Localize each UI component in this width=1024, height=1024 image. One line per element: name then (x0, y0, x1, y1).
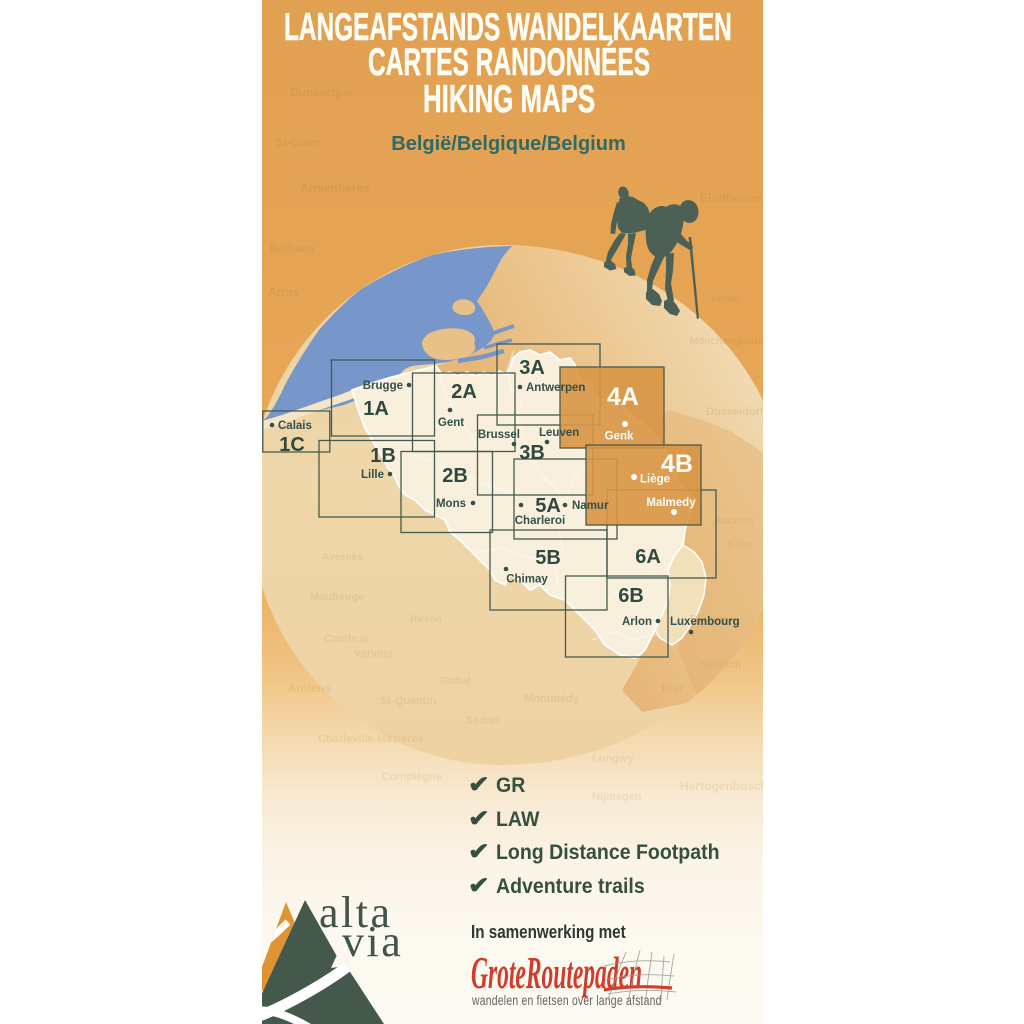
svg-text:Malmedy: Malmedy (646, 497, 696, 509)
svg-text:5B: 5B (535, 547, 561, 569)
svg-text:via: via (342, 917, 403, 966)
svg-text:Brugge: Brugge (363, 380, 403, 392)
svg-text:Köln: Köln (728, 539, 753, 551)
svg-text:Avesnes: Avesnes (322, 552, 363, 563)
svg-text:Düsseldorf: Düsseldorf (706, 406, 763, 418)
svg-text:Arlon: Arlon (622, 616, 652, 628)
svg-text:Leuven: Leuven (539, 427, 579, 439)
svg-text:Armentières: Armentières (300, 181, 370, 195)
svg-text:Liège: Liège (640, 474, 670, 486)
svg-text:5A: 5A (535, 495, 561, 517)
svg-text:Namur: Namur (572, 500, 609, 512)
svg-text:Longwy: Longwy (592, 753, 634, 765)
svg-text:Amiens: Amiens (288, 681, 332, 695)
svg-text:Nijmegen: Nijmegen (592, 791, 642, 803)
svg-text:3B: 3B (519, 442, 545, 464)
svg-text:Antwerpen: Antwerpen (526, 382, 585, 394)
svg-text:Arras: Arras (268, 285, 300, 299)
svg-text:Maubeuge: Maubeuge (310, 591, 364, 603)
svg-text:Aachen: Aachen (714, 515, 754, 527)
svg-text:Compiègne: Compiègne (382, 771, 442, 783)
svg-text:Brussel: Brussel (478, 429, 520, 441)
svg-text:2B: 2B (442, 465, 468, 487)
svg-text:6B: 6B (618, 585, 644, 607)
svg-text:Mönchengladbach: Mönchengladbach (690, 336, 763, 347)
svg-text:Rethel: Rethel (440, 676, 471, 687)
svg-text:2A: 2A (451, 381, 477, 403)
svg-text:1B: 1B (370, 445, 396, 467)
svg-text:Hirson: Hirson (410, 614, 442, 625)
svg-text:Sedan: Sedan (466, 715, 499, 727)
svg-text:Gent: Gent (438, 417, 464, 429)
svg-text:Luxembourg: Luxembourg (670, 616, 740, 628)
svg-text:Vervins: Vervins (354, 648, 393, 660)
svg-text:Venlo: Venlo (710, 293, 740, 305)
svg-text:1A: 1A (363, 398, 389, 420)
svg-text:Charleville-Mézières: Charleville-Mézières (318, 733, 424, 745)
svg-text:Hertogenbosch: Hertogenbosch (680, 779, 763, 793)
svg-text:Genk: Genk (605, 431, 634, 443)
svg-text:Calais: Calais (278, 420, 312, 432)
svg-text:Wittlich: Wittlich (702, 659, 742, 671)
svg-text:Trier: Trier (660, 683, 685, 695)
svg-text:Charleroi: Charleroi (515, 515, 566, 527)
svg-text:4A: 4A (607, 383, 639, 411)
svg-text:1C: 1C (279, 434, 305, 456)
svg-text:Chimay: Chimay (506, 574, 548, 586)
svg-text:Cambrai: Cambrai (324, 633, 368, 645)
svg-text:Béthune: Béthune (270, 243, 314, 255)
svg-text:Mons: Mons (436, 498, 466, 510)
svg-text:3A: 3A (519, 357, 545, 379)
svg-text:St-Quentin: St-Quentin (380, 695, 436, 707)
svg-text:Dunkerque: Dunkerque (290, 85, 353, 99)
svg-text:Eindhoven: Eindhoven (700, 191, 761, 205)
svg-text:6A: 6A (635, 546, 661, 568)
svg-text:Montmédy: Montmédy (524, 693, 580, 705)
svg-text:Lille: Lille (361, 469, 384, 481)
